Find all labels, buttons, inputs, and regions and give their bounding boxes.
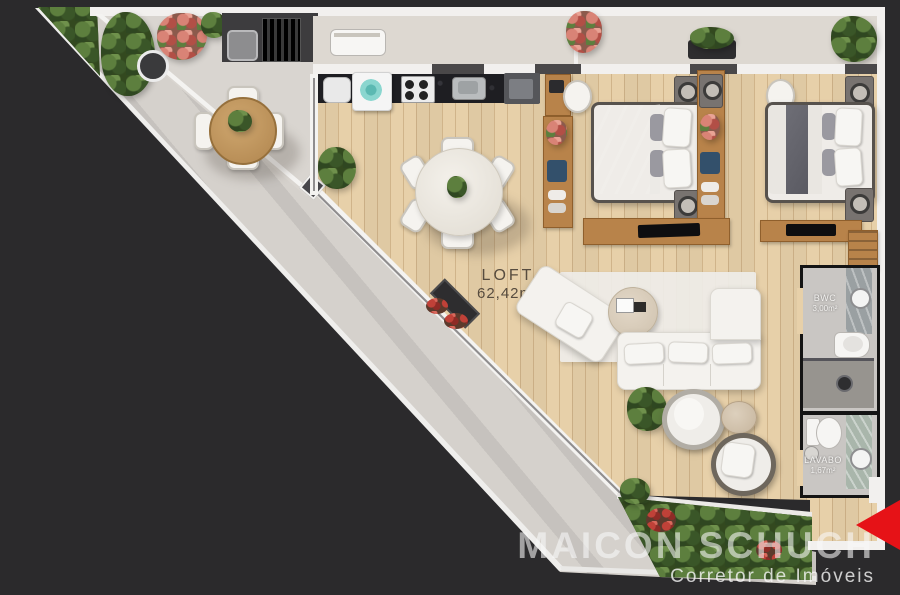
lavabo-label: LAVABO 1,67m² bbox=[794, 455, 852, 476]
indoor-plant bbox=[318, 147, 356, 189]
bed-2-runner bbox=[786, 105, 808, 194]
shoes bbox=[548, 203, 566, 213]
bwc-label: BWC 3,00m² bbox=[796, 293, 854, 314]
wall-segment bbox=[432, 64, 484, 74]
watermark-subtitle: Corretor de Imóveis bbox=[517, 566, 875, 588]
lavabo-name: LAVABO bbox=[794, 455, 852, 466]
lavabo-sink bbox=[850, 448, 872, 470]
lamp bbox=[850, 83, 870, 103]
cabinet-front bbox=[509, 79, 533, 99]
dining-centerpiece bbox=[447, 176, 467, 198]
sofa-right-arm bbox=[710, 288, 761, 340]
window-sill-wall bbox=[313, 64, 877, 74]
lavabo-area: 1,67m² bbox=[794, 466, 852, 476]
pillow bbox=[662, 148, 692, 188]
grill-sink bbox=[227, 30, 258, 61]
armchair-2-cushion bbox=[720, 441, 756, 479]
bench-back bbox=[334, 33, 380, 37]
loft-west-glass bbox=[313, 78, 315, 191]
desk-chair bbox=[563, 80, 592, 113]
shoes bbox=[701, 182, 719, 192]
books bbox=[634, 302, 646, 312]
burner bbox=[405, 91, 414, 100]
burner bbox=[405, 80, 414, 89]
bottom-corner-wall bbox=[869, 477, 883, 503]
small-plant bbox=[620, 478, 650, 504]
wall-segment bbox=[845, 64, 877, 74]
shower-glass bbox=[803, 358, 874, 361]
laptop bbox=[549, 80, 564, 93]
washer-drum bbox=[360, 79, 382, 101]
table-centerpiece-plant bbox=[228, 110, 252, 132]
sofa-pillow bbox=[668, 341, 709, 363]
lamp bbox=[678, 196, 698, 216]
bed-1-duvet bbox=[594, 105, 652, 194]
pillow bbox=[662, 107, 693, 148]
tv-1 bbox=[638, 223, 700, 238]
lavabo-toilet bbox=[816, 417, 842, 449]
lamp bbox=[850, 194, 870, 214]
pillow bbox=[834, 107, 863, 146]
cushion-seam bbox=[663, 364, 664, 386]
pillow bbox=[834, 147, 864, 187]
sofa-pillow bbox=[623, 342, 664, 365]
bwc-area: 3,00m² bbox=[796, 304, 854, 314]
shoes bbox=[701, 195, 719, 205]
lamp bbox=[678, 82, 698, 102]
cushion-seam bbox=[710, 364, 711, 386]
sofa-pillow bbox=[712, 342, 753, 364]
books bbox=[616, 298, 634, 313]
sill-red-flowers bbox=[444, 313, 468, 329]
balcony-plant bbox=[831, 16, 877, 62]
armchair-1-cushion bbox=[674, 398, 704, 430]
tv-2 bbox=[786, 224, 836, 236]
pouf bbox=[721, 401, 757, 434]
burner bbox=[419, 80, 428, 89]
broker-watermark: MAICON SCHUCH Corretor de Imóveis bbox=[517, 527, 875, 588]
bwc-name: BWC bbox=[796, 293, 854, 304]
lamp bbox=[703, 81, 722, 100]
watermark-title: MAICON SCHUCH bbox=[517, 527, 875, 564]
shoes bbox=[548, 190, 566, 200]
laundry-sink bbox=[323, 77, 351, 103]
shelf-box bbox=[547, 160, 567, 182]
floor-plan-render: LOFT 62,42m² BWC 3,00m² LAVABO 1,67m² bbox=[0, 0, 900, 595]
burner bbox=[419, 91, 428, 100]
plant-pot bbox=[137, 50, 169, 82]
shower-head bbox=[836, 375, 853, 392]
sink-basin bbox=[458, 81, 478, 94]
planter-box-plants bbox=[690, 27, 734, 49]
bookshelf bbox=[848, 230, 878, 270]
toilet-lid bbox=[843, 336, 863, 352]
shelf-box bbox=[700, 152, 720, 174]
grill-icon bbox=[262, 18, 301, 62]
wall-segment bbox=[535, 64, 581, 74]
